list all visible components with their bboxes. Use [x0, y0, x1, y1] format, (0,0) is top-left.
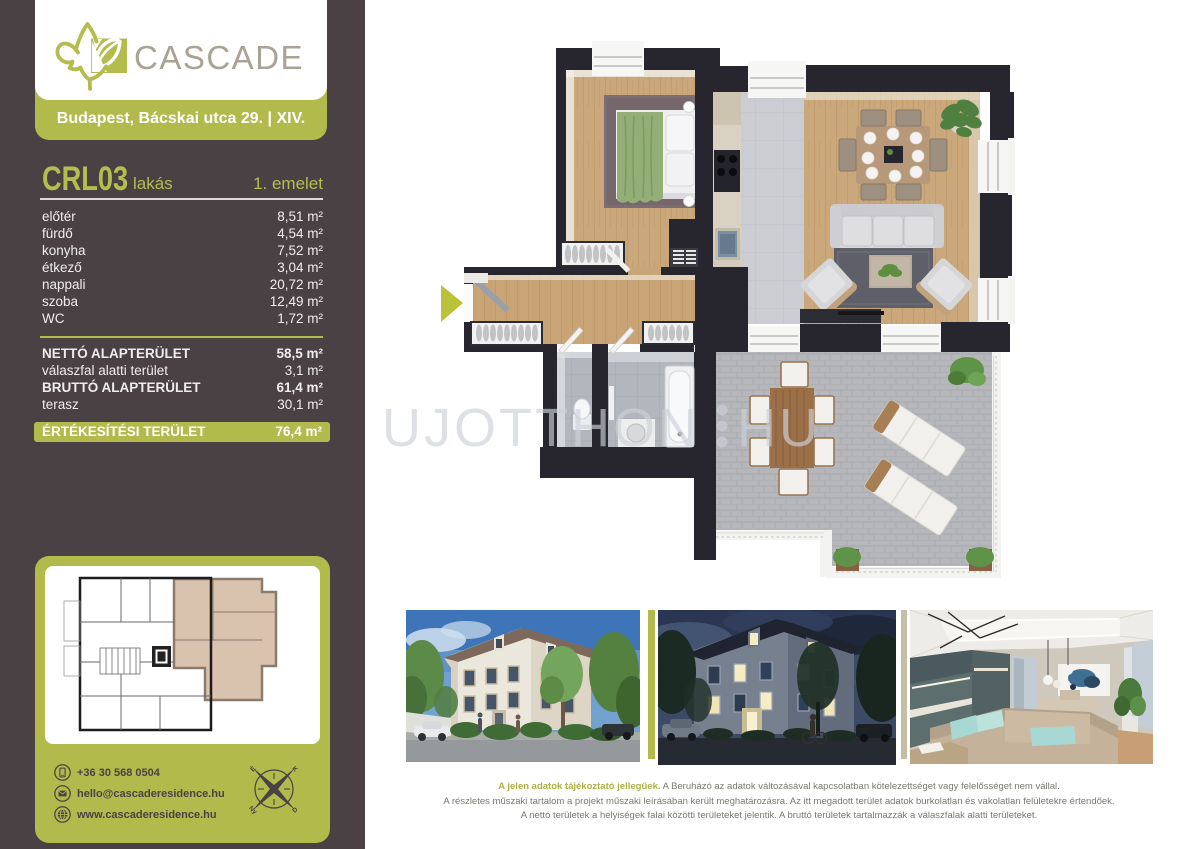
svg-text:HU: HU: [737, 398, 821, 458]
svg-text:D: D: [291, 806, 299, 814]
svg-text:K: K: [291, 765, 299, 773]
svg-text:UJOTTHON: UJOTTHON: [382, 398, 700, 458]
